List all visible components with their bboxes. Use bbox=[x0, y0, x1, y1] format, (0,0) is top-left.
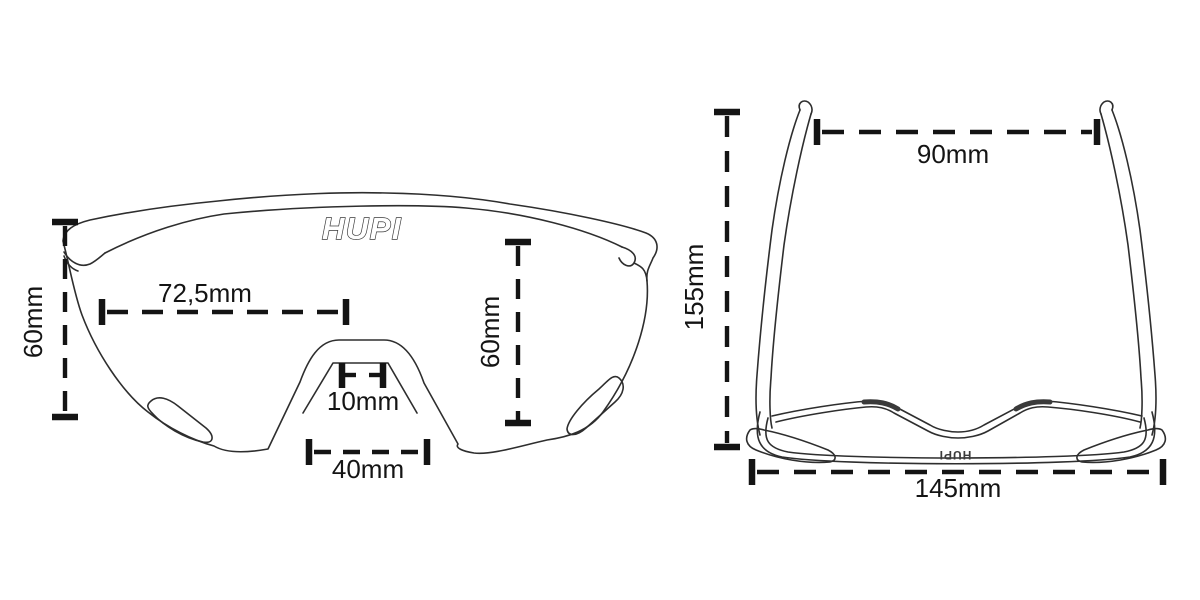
left-temple-tip bbox=[799, 101, 812, 114]
dim-lens-width: 72,5mm bbox=[102, 278, 346, 325]
dim-total-width: 145mm bbox=[752, 459, 1163, 503]
dim-frame-height: 60mm bbox=[18, 222, 78, 417]
front-view: HUPI 60mm 72,5mm 60mm 10mm bbox=[18, 193, 657, 484]
brow-bar-outer bbox=[772, 401, 1142, 432]
dim-temple-spread: 90mm bbox=[817, 119, 1097, 169]
glasses-technical-drawing: HUPI 60mm 72,5mm 60mm 10mm bbox=[0, 0, 1200, 600]
brand-logo-front: HUPI bbox=[322, 211, 402, 246]
brand-logo-frame-top: HUPI bbox=[939, 448, 972, 462]
dim-label-nose-cutout: 40mm bbox=[332, 454, 404, 484]
brow-bar-inner bbox=[776, 407, 1140, 438]
right-grip-accent bbox=[567, 377, 623, 435]
dim-label-temple-spread: 90mm bbox=[917, 139, 989, 169]
dim-label-lens-width: 72,5mm bbox=[158, 278, 252, 308]
right-endpiece-hook bbox=[634, 263, 647, 281]
dim-label-bridge-width: 10mm bbox=[327, 386, 399, 416]
dim-bridge-width: 10mm bbox=[327, 363, 399, 416]
dim-label-lens-height: 60mm bbox=[475, 296, 505, 368]
right-endpiece bbox=[619, 247, 635, 266]
top-view: HUPI 90mm 155mm 145mm bbox=[679, 101, 1165, 503]
diagram-canvas: HUPI 60mm 72,5mm 60mm 10mm bbox=[0, 0, 1200, 600]
dim-temple-length: 155mm bbox=[679, 112, 740, 447]
left-endpiece bbox=[64, 252, 105, 265]
dim-nose-cutout: 40mm bbox=[309, 439, 427, 484]
left-temple-outer bbox=[756, 110, 800, 435]
dim-lens-height: 60mm bbox=[475, 242, 531, 423]
dim-label-frame-height: 60mm bbox=[18, 286, 48, 358]
right-temple-inner bbox=[1101, 114, 1142, 428]
left-temple-inner bbox=[770, 114, 811, 428]
right-temple-outer bbox=[1112, 110, 1156, 435]
dim-label-temple-length: 155mm bbox=[679, 244, 709, 331]
right-temple-tip bbox=[1100, 101, 1113, 114]
dim-label-total-width: 145mm bbox=[915, 473, 1002, 503]
